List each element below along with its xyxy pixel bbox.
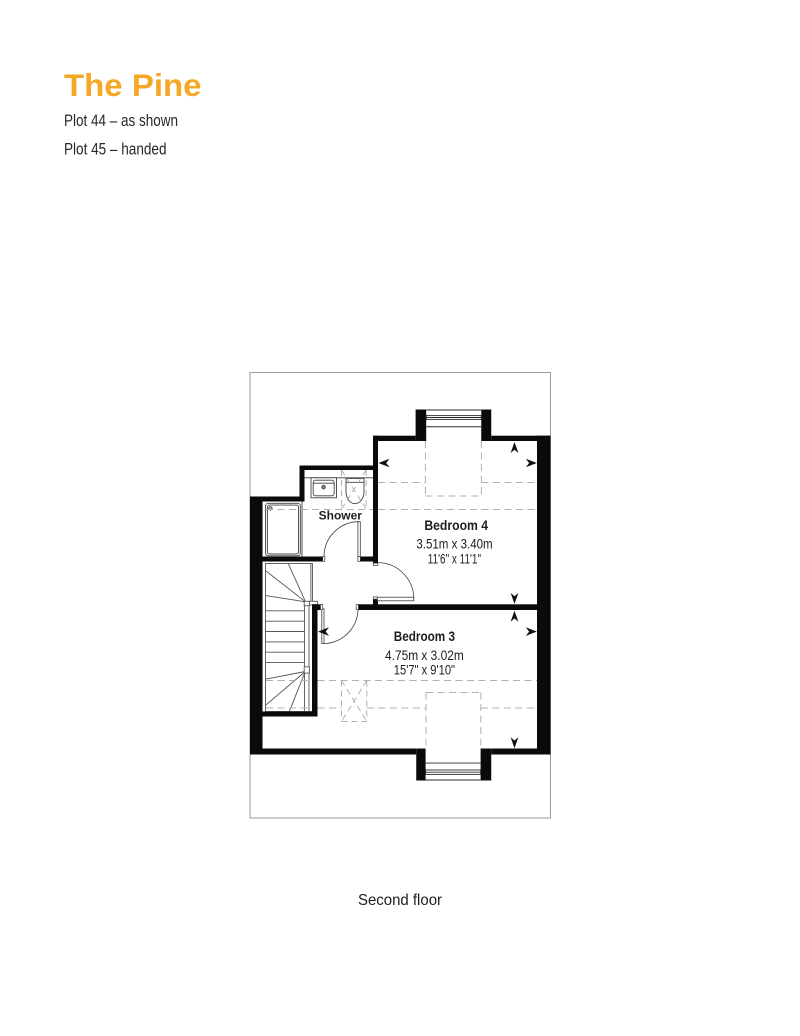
svg-text:11'6" x 11'1": 11'6" x 11'1": [428, 551, 481, 566]
svg-text:Shower: Shower: [319, 511, 363, 523]
svg-text:Bedroom 3: Bedroom 3: [394, 628, 455, 644]
svg-text:The Pine: The Pine: [64, 67, 202, 103]
svg-text:Plot 45 – handed: Plot 45 – handed: [64, 139, 167, 158]
svg-text:3.51m x 3.40m: 3.51m x 3.40m: [416, 536, 492, 551]
svg-text:Second floor: Second floor: [358, 892, 443, 909]
svg-text:Plot 44 – as shown: Plot 44 – as shown: [64, 111, 178, 130]
svg-text:4.75m x 3.02m: 4.75m x 3.02m: [385, 648, 464, 663]
svg-text:Bedroom 4: Bedroom 4: [424, 517, 488, 533]
svg-text:15'7" x 9'10": 15'7" x 9'10": [394, 663, 455, 678]
